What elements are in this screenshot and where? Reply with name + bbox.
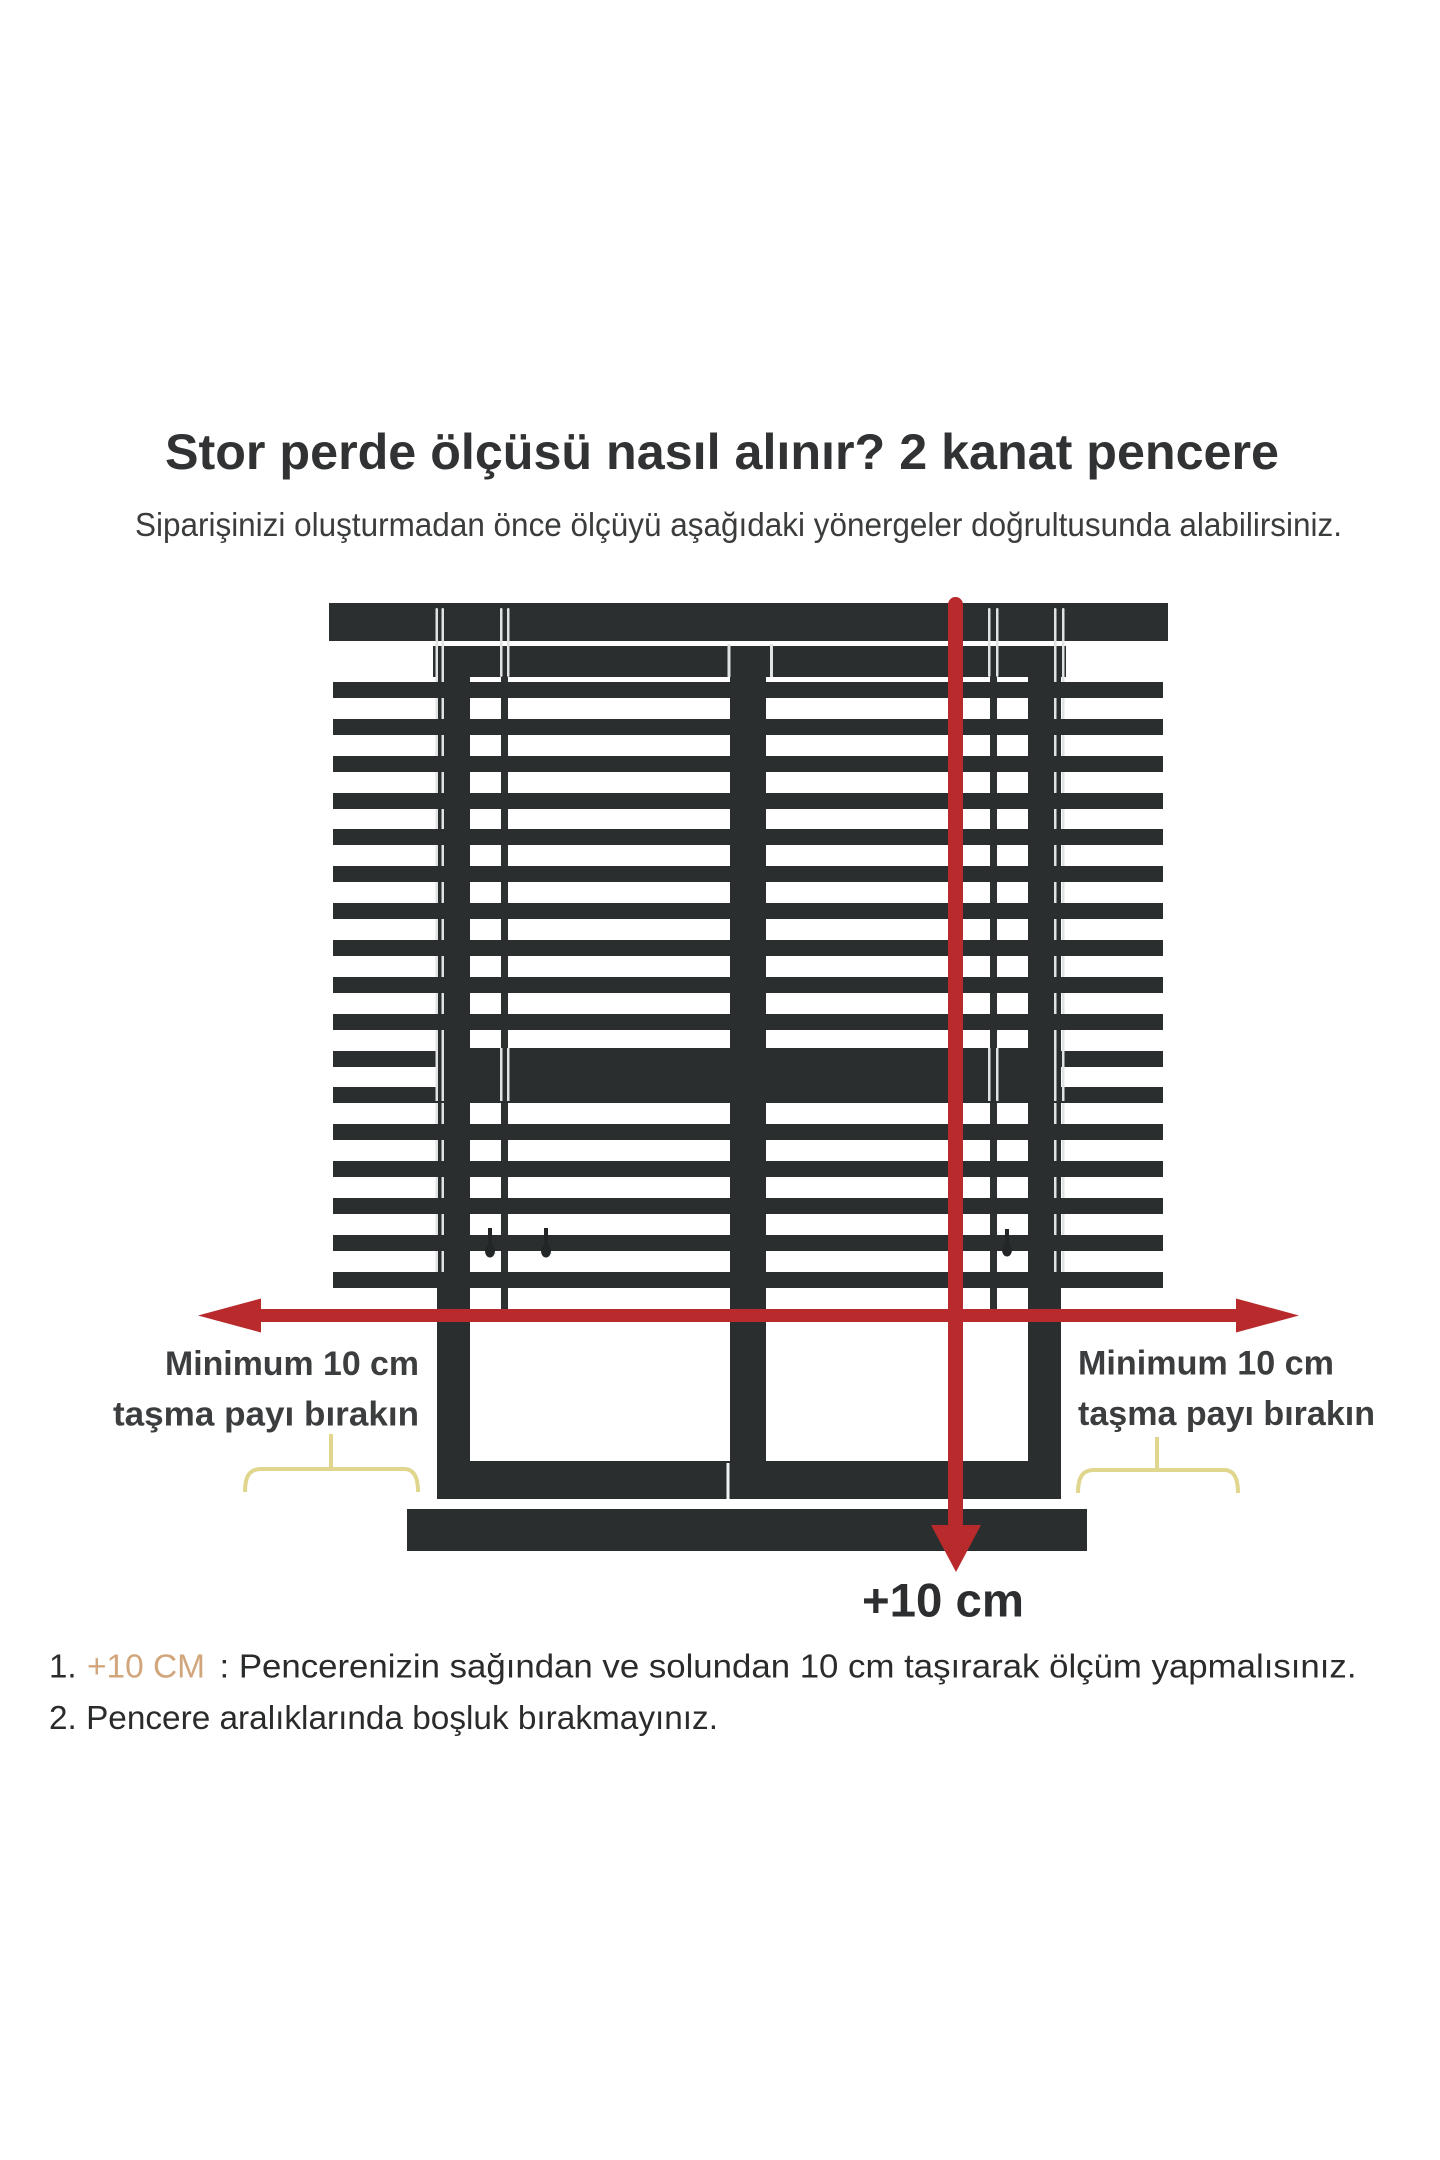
svg-text:2. Pencere aralıklarında boşlu: 2. Pencere aralıklarında boşluk bırakmay… bbox=[49, 1699, 718, 1736]
svg-text:1.: 1. bbox=[49, 1648, 77, 1685]
svg-text:taşma payı bırakın: taşma payı bırakın bbox=[1078, 1395, 1375, 1433]
svg-text:+10 cm: +10 cm bbox=[862, 1574, 1024, 1627]
svg-text:Minimum 10 cm: Minimum 10 cm bbox=[165, 1345, 419, 1383]
svg-text:Minimum 10 cm: Minimum 10 cm bbox=[1078, 1345, 1334, 1383]
svg-text:Siparişinizi oluşturmadan önce: Siparişinizi oluşturmadan önce ölçüyü aş… bbox=[135, 506, 1342, 543]
svg-text:: Pencerenizin sağından ve sol: : Pencerenizin sağından ve solundan 10 c… bbox=[220, 1648, 1357, 1685]
svg-text:taşma payı bırakın: taşma payı bırakın bbox=[113, 1396, 419, 1434]
svg-text:+10 CM: +10 CM bbox=[87, 1648, 205, 1685]
svg-text:Stor perde ölçüsü nasıl alınır: Stor perde ölçüsü nasıl alınır? 2 kanat … bbox=[165, 424, 1279, 480]
